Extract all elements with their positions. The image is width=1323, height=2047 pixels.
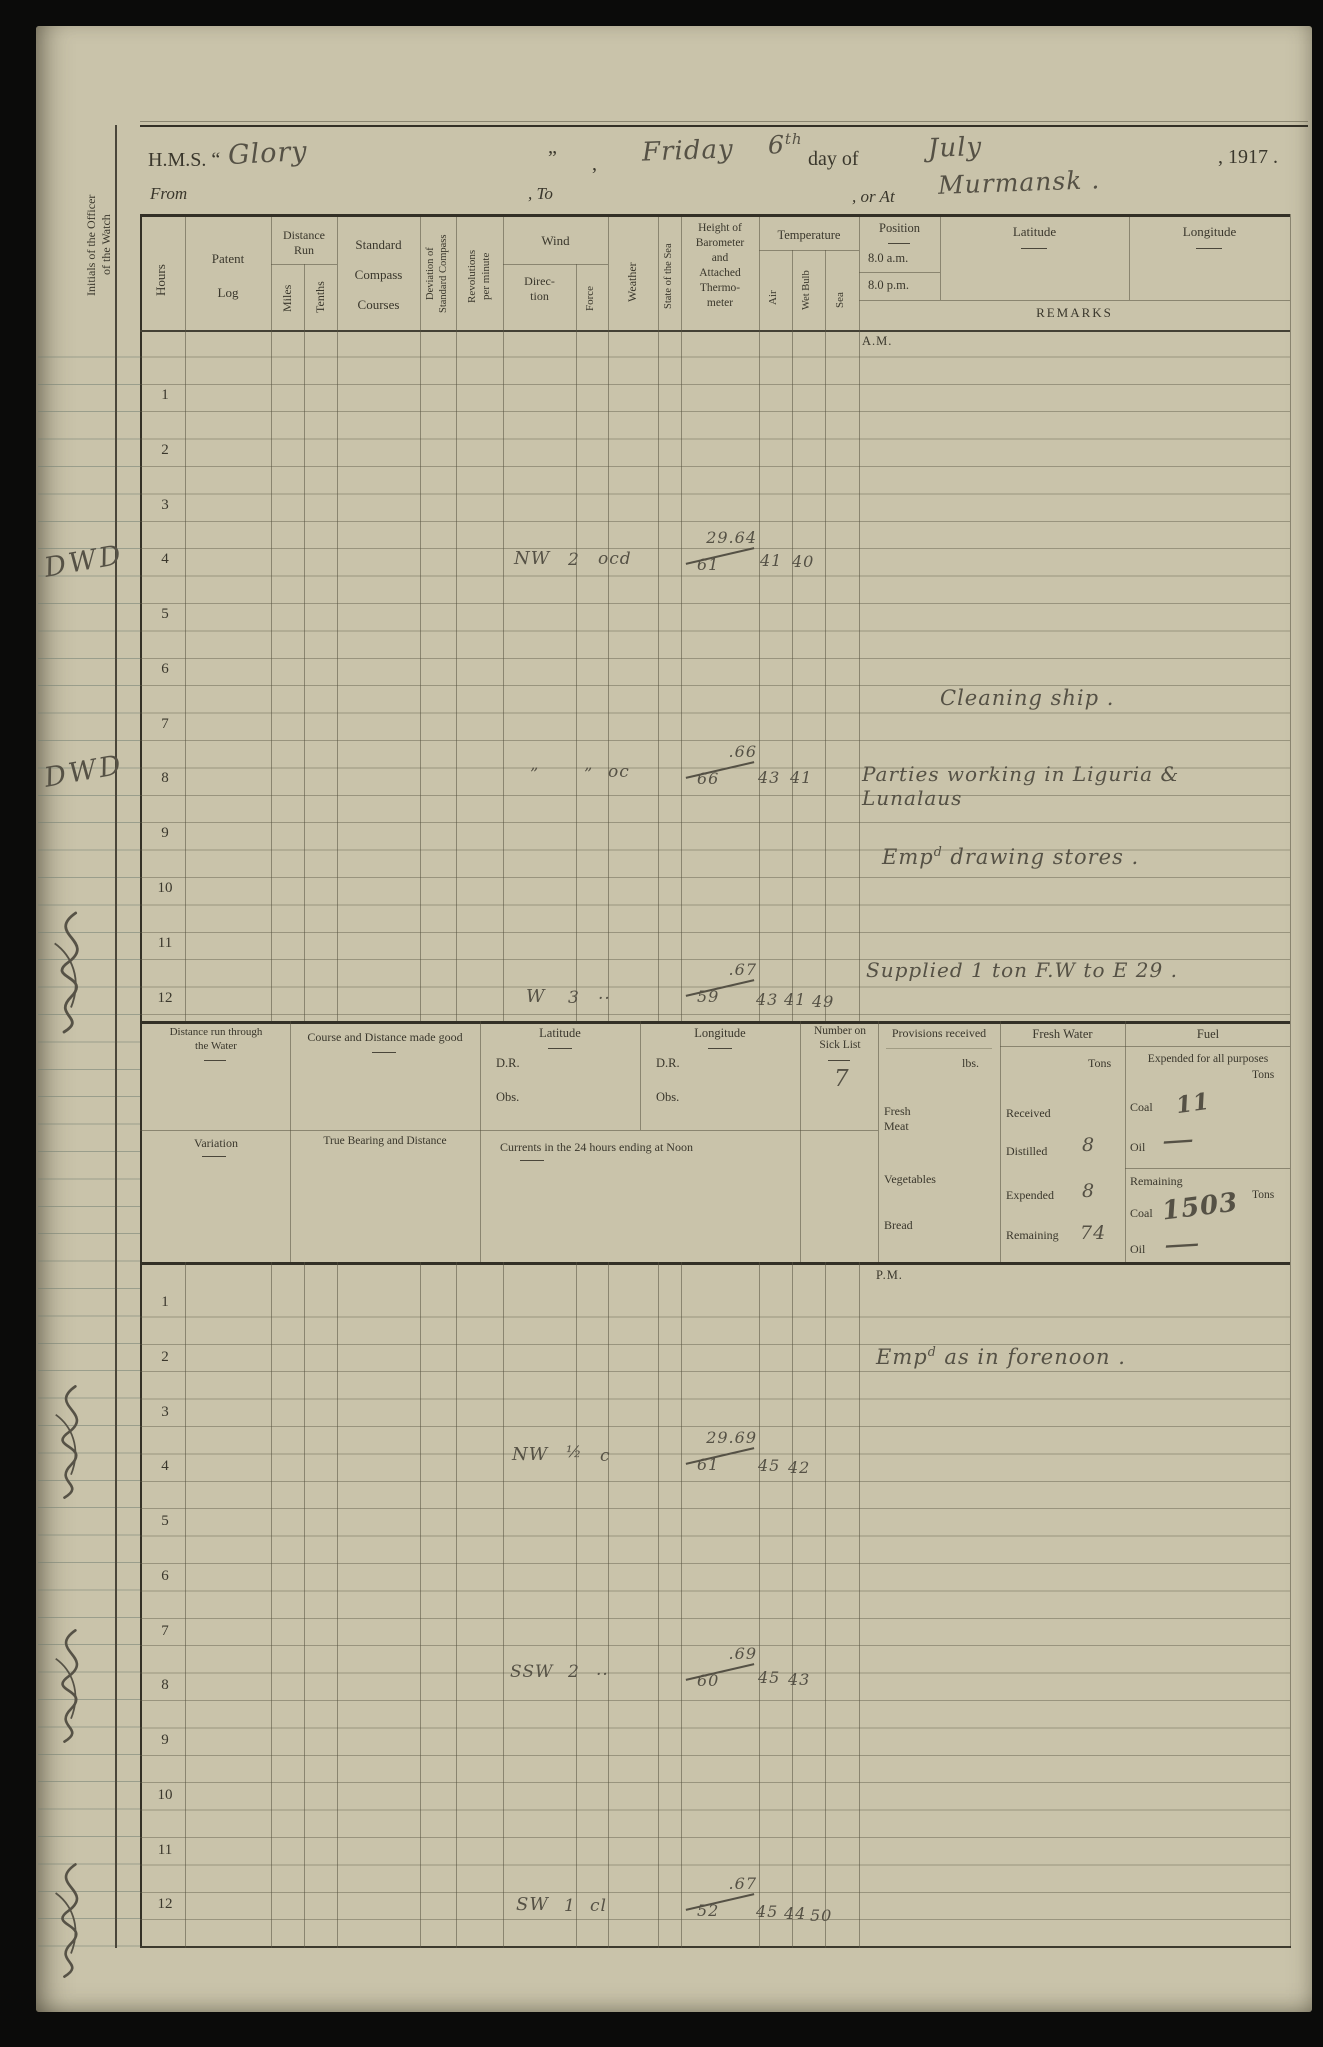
comma: ,: [592, 152, 597, 177]
fuel-expended-header: Expended for all purposes: [1127, 1052, 1289, 1066]
am-r12-sea-temp: 49: [812, 992, 834, 1011]
noon-col-line: [878, 1021, 879, 1262]
standard-compass-header: Standard Compass Courses: [337, 230, 420, 320]
am-r4-wind-force: 2: [568, 550, 580, 570]
fuel-oil-label: Oil: [1130, 1140, 1145, 1155]
fuel-coal-remaining-label: Coal: [1130, 1206, 1153, 1221]
col-line: [681, 1262, 682, 1948]
provisions-label: Provisions received: [880, 1026, 998, 1041]
col-line: [825, 250, 826, 330]
table-right-border: [1290, 214, 1291, 1948]
col-line: [304, 330, 305, 1021]
variation-dash: [202, 1156, 226, 1157]
am-r8-wind-force: ”: [584, 764, 593, 783]
col-line: [792, 250, 793, 330]
sick-list-label: Number on Sick List: [802, 1024, 878, 1053]
noon-col-line: [800, 1021, 801, 1262]
col-line: [576, 264, 577, 330]
fresh-meat-label: Fresh Meat: [884, 1104, 911, 1134]
officer-initials-label: Initials of the Officer of the Watch: [84, 160, 114, 330]
remarks-top-line: [859, 300, 1290, 301]
col-line: [503, 1262, 504, 1948]
position-header: Position: [859, 221, 940, 237]
am-r4-air-temp: 41: [760, 551, 782, 570]
am-label: A.M.: [862, 334, 892, 350]
am-r8-remark: Parties working in Liguria & Lunalaus: [862, 762, 1262, 810]
position-dash: [888, 243, 910, 244]
remarks-header: REMARKS: [859, 305, 1290, 321]
fresh-water-label: Fresh Water: [1002, 1027, 1123, 1043]
fw-distilled-label: Distilled: [1006, 1144, 1047, 1159]
position-8am: 8.0 a.m.: [868, 251, 908, 267]
bread-label: Bread: [884, 1218, 913, 1233]
fuel-remaining-tons-label: Tons: [1252, 1188, 1274, 1202]
sick-list-value: 7: [834, 1066, 850, 1092]
course-made-good-label: Course and Distance made good: [292, 1030, 478, 1045]
barometer-slash: [686, 1447, 755, 1465]
col-line: [185, 1262, 186, 1948]
pm-hour-1: 1: [148, 1293, 182, 1312]
fuel-oil-expended-dash: —: [1160, 1127, 1197, 1153]
vegetables-label: Vegetables: [884, 1172, 936, 1187]
col-line: [825, 330, 826, 1021]
am-r12-air-temp: 43: [756, 990, 778, 1009]
am-hour-12: 12: [148, 989, 182, 1008]
am-hour-10: 10: [148, 879, 182, 898]
pm-r8-barometer-bottom: 60: [697, 1671, 719, 1690]
am-r8-weather: oc: [608, 762, 630, 782]
col-line: [859, 330, 860, 1021]
latitude-header: Latitude: [940, 224, 1129, 240]
distance-water-dash: [204, 1060, 226, 1061]
pm-r4-weather: c: [600, 1446, 611, 1466]
pm-r8-wind-force: 2: [568, 1662, 580, 1682]
pm-r2-remark-sup: d: [928, 1344, 937, 1359]
col-line: [658, 217, 659, 330]
am-r4-wind-direction: NW: [514, 548, 550, 569]
fuel-remaining-header: Remaining: [1130, 1174, 1183, 1189]
table-top-border: [140, 214, 1290, 217]
distance-run-header: Distance Run: [271, 228, 337, 258]
col-line: [337, 1262, 338, 1948]
pm-hour-7: 7: [148, 1622, 182, 1641]
temperature-header: Temperature: [759, 228, 859, 244]
pm-r12-wet-temp: 44: [784, 1904, 806, 1923]
am-r12-weather: ..: [598, 984, 611, 1004]
pm-hour-3: 3: [148, 1403, 182, 1422]
revolutions-header: Revolutions per minute: [466, 226, 494, 326]
pm-label: P.M.: [876, 1268, 903, 1284]
pm-hour-9: 9: [148, 1731, 182, 1750]
true-bearing-label: True Bearing and Distance: [292, 1134, 478, 1148]
fuel-oil-remaining-label: Oil: [1130, 1242, 1145, 1257]
pm-r12-sea-temp: 50: [810, 1906, 832, 1925]
pm-r2-remark-post: as in forenoon .: [937, 1345, 1126, 1369]
am-hour-4: 4: [148, 550, 182, 569]
noon-col-line: [480, 1021, 481, 1262]
officer-signature-flourish: [38, 1382, 104, 1507]
currents-dash: [520, 1160, 544, 1161]
day-ordinal: th: [785, 130, 803, 148]
place-name: Murmansk .: [938, 165, 1101, 200]
month: July: [927, 132, 982, 164]
noon-col-line: [1125, 1021, 1126, 1262]
lbs-label: lbs.: [962, 1056, 979, 1071]
barometer-slash: [686, 547, 755, 565]
col-line: [759, 1262, 760, 1948]
col-line: [759, 330, 760, 1021]
variation-label: Variation: [142, 1136, 290, 1151]
am-r12-wet-temp: 41: [784, 990, 806, 1009]
distance-water-label: Distance run through the Water: [142, 1026, 290, 1054]
pm-r8-wind-direction: SSW: [510, 1662, 553, 1682]
col-line: [185, 330, 186, 1021]
fw-remaining-value: 74: [1080, 1222, 1106, 1244]
or-at-label: , or At: [852, 186, 895, 207]
pm-r8-wet-temp: 43: [788, 1670, 810, 1689]
am-hour-2: 2: [148, 441, 182, 460]
longitude-dash: [1196, 248, 1222, 249]
noon-mid-line: [140, 1130, 878, 1131]
fresh-water-underline: [1000, 1046, 1125, 1047]
col-line: [271, 330, 272, 1021]
am-r8-barometer: .66 66: [683, 742, 759, 796]
fw-tons-label: Tons: [1088, 1056, 1111, 1071]
latitude-dash: [1021, 248, 1047, 249]
am-r12-wind-force: 3: [568, 988, 580, 1008]
noon-col-line: [1000, 1021, 1001, 1262]
officer-signature-flourish: [38, 1858, 104, 1988]
fw-received-label: Received: [1006, 1106, 1051, 1121]
am-grid-lines: [140, 330, 1290, 1021]
am-r9-remark: Empd drawing stores .: [882, 844, 1139, 869]
pm-hour-11: 11: [148, 1841, 182, 1860]
am-r12-barometer-bottom: 59: [697, 987, 719, 1006]
close-quote: ”: [548, 146, 557, 171]
pm-r12-air-temp: 45: [756, 1902, 778, 1921]
noon-col-line: [640, 1021, 641, 1130]
hms-label: H.M.S. “: [148, 148, 220, 173]
fuel-coal-label: Coal: [1130, 1100, 1153, 1115]
col-line: [337, 330, 338, 1021]
am-r12-barometer-top: .67: [729, 960, 757, 979]
pm-r4-wet-temp: 42: [788, 1458, 810, 1477]
pm-r4-wind-direction: NW: [512, 1444, 548, 1465]
day-of-label: day of: [808, 147, 859, 172]
fuel-coal-expended-value: 11: [1174, 1088, 1211, 1119]
am-hour-3: 3: [148, 496, 182, 515]
am-r8-wet-temp: 41: [790, 768, 812, 787]
wind-header: Wind: [503, 233, 608, 249]
col-line: [420, 217, 421, 330]
fw-remaining-label: Remaining: [1006, 1228, 1059, 1243]
pm-r2-remark-pre: Emp: [876, 1345, 928, 1369]
pm-r4-air-temp: 45: [758, 1456, 780, 1475]
barometer-slash: [686, 1663, 755, 1681]
barometer-slash: [686, 979, 755, 997]
fuel-remaining-split: [1125, 1168, 1290, 1169]
position-8pm: 8.0 p.m.: [868, 278, 909, 294]
force-header: Force: [584, 272, 598, 324]
noon-bottom-border: [140, 1262, 1290, 1265]
barometer-header: Height of Barometer and Attached Thermo-…: [681, 221, 759, 311]
fuel-tons-label: Tons: [1252, 1068, 1274, 1082]
pm-hour-10: 10: [148, 1786, 182, 1805]
am-hour-9: 9: [148, 824, 182, 843]
course-made-good-dash: [372, 1052, 396, 1053]
direction-header: Direc- tion: [503, 274, 576, 304]
distance-run-split: [271, 264, 337, 265]
officer-signature-flourish: [36, 905, 106, 1045]
noon-col-line: [290, 1021, 291, 1262]
col-line: [456, 1262, 457, 1948]
wet-bulb-header: Wet Bulb: [800, 258, 813, 322]
deviation-header: Deviation of Standard Compass: [424, 222, 450, 326]
officer-signature-flourish: [38, 1626, 104, 1751]
am-hour-8: 8: [148, 769, 182, 788]
pm-r12-wind-direction: SW: [516, 1894, 549, 1915]
state-of-sea-header: State of the Sea: [662, 226, 675, 326]
to-label: , To: [528, 183, 553, 204]
am-r9-remark-pre: Emp: [882, 845, 934, 869]
miles-header: Miles: [280, 270, 295, 326]
noon-latitude-dash: [548, 1048, 572, 1049]
col-line: [658, 330, 659, 1021]
pm-r2-remark: Empd as in forenoon .: [876, 1344, 1126, 1369]
am-r4-weather: ocd: [598, 549, 632, 569]
pm-hour-12: 12: [148, 1895, 182, 1914]
sick-list-dash: [828, 1060, 850, 1061]
pm-hour-4: 4: [148, 1457, 182, 1476]
top-rule: [140, 125, 1308, 127]
air-header: Air: [767, 278, 781, 318]
patent-log-header: Patent Log: [185, 242, 271, 310]
am-r8-wind-direction: ”: [530, 764, 539, 783]
sea-header: Sea: [834, 280, 848, 320]
longitude-obs-label: Obs.: [656, 1090, 679, 1106]
pm-r8-barometer: .69 60: [683, 1644, 759, 1698]
provisions-underline: [886, 1048, 992, 1049]
am-r12-barometer: .67 59: [683, 960, 759, 1014]
pm-r8-barometer-top: .69: [729, 1644, 757, 1663]
noon-longitude-label: Longitude: [642, 1026, 798, 1042]
am-r9-remark-sup: d: [934, 844, 943, 859]
am-r8-barometer-top: .66: [729, 742, 757, 761]
from-label: From: [150, 183, 187, 204]
weekday: Friday: [642, 134, 735, 167]
col-line: [576, 330, 577, 1021]
logbook-scan: H.M.S. “ Glory ” , Friday 6th day of Jul…: [0, 0, 1323, 2047]
pm-r4-barometer: 29.69 61: [683, 1428, 759, 1482]
currents-label: Currents in the 24 hours ending at Noon: [500, 1140, 693, 1155]
weather-header: Weather: [625, 242, 640, 322]
day-number: 6th: [768, 130, 803, 159]
am-r12-wind-direction: W: [526, 986, 546, 1007]
fuel-oil-remaining-dash: —: [1161, 1231, 1203, 1257]
fuel-label: Fuel: [1127, 1027, 1289, 1043]
col-line: [608, 330, 609, 1021]
longitude-header: Longitude: [1129, 224, 1290, 240]
col-line: [792, 330, 793, 1021]
pm-r4-wind-force: ½: [566, 1442, 583, 1461]
am-r4-barometer-bottom: 61: [697, 555, 719, 574]
pm-r12-barometer: .67 52: [683, 1874, 759, 1928]
am-r4-barometer-top: 29.64: [706, 528, 757, 547]
col-line: [792, 1262, 793, 1948]
tenths-header: Tenths: [313, 266, 328, 328]
pm-r12-wind-force: 1: [564, 1896, 576, 1916]
pm-r8-weather: ..: [596, 1660, 609, 1680]
pm-r12-barometer-top: .67: [729, 1874, 757, 1893]
am-r7-remark: Cleaning ship .: [940, 686, 1114, 710]
fuel-underline: [1125, 1046, 1290, 1047]
am-hour-11: 11: [148, 934, 182, 953]
top-rule-thin: [140, 121, 1308, 122]
am-r8-barometer-bottom: 66: [697, 769, 719, 788]
col-line: [681, 330, 682, 1021]
pm-hour-6: 6: [148, 1567, 182, 1586]
latitude-dr-label: D.R.: [496, 1056, 520, 1072]
fw-distilled-value: 8: [1082, 1134, 1095, 1156]
position-am-pm-split: [859, 272, 940, 273]
pm-r4-barometer-bottom: 61: [697, 1455, 719, 1474]
col-line: [608, 1262, 609, 1948]
col-line: [304, 264, 305, 330]
col-line: [658, 1262, 659, 1948]
am-r8-air-temp: 43: [758, 768, 780, 787]
pm-r4-barometer-top: 29.69: [706, 1428, 757, 1447]
noon-longitude-dash: [708, 1048, 732, 1049]
am-hour-7: 7: [148, 715, 182, 734]
pm-hour-2: 2: [148, 1348, 182, 1367]
am-r4-barometer: 29.64 61: [683, 528, 759, 582]
am-hour-1: 1: [148, 386, 182, 405]
noon-latitude-label: Latitude: [482, 1026, 638, 1042]
col-line: [503, 330, 504, 1021]
col-line: [304, 1262, 305, 1948]
barometer-slash: [686, 761, 755, 779]
col-line: [825, 1262, 826, 1948]
pm-r12-barometer-bottom: 52: [697, 1901, 719, 1920]
wind-split: [503, 264, 608, 265]
col-line: [420, 330, 421, 1021]
am-hour-6: 6: [148, 660, 182, 679]
col-line: [576, 1262, 577, 1948]
pm-grid-lines: [140, 1290, 1290, 1948]
pm-hour-8: 8: [148, 1676, 182, 1695]
col-line: [859, 1262, 860, 1948]
margin-rule: [115, 125, 117, 1948]
pm-r12-weather: cl: [590, 1896, 607, 1916]
barometer-slash: [686, 1893, 755, 1911]
day-digit: 6: [768, 130, 785, 159]
am-hour-5: 5: [148, 605, 182, 624]
longitude-dr-label: D.R.: [656, 1056, 680, 1072]
am-r4-wet-temp: 40: [792, 552, 814, 571]
year: , 1917 .: [1218, 145, 1278, 170]
pm-hour-5: 5: [148, 1512, 182, 1531]
temperature-split: [759, 250, 859, 251]
noon-top-border: [140, 1021, 1290, 1024]
col-line: [420, 1262, 421, 1948]
fw-expended-value: 8: [1082, 1180, 1095, 1202]
col-line: [456, 217, 457, 330]
pm-r8-air-temp: 45: [758, 1668, 780, 1687]
am-r9-remark-post: drawing stores .: [943, 845, 1139, 869]
hours-header: Hours: [153, 235, 169, 325]
ship-name: Glory: [227, 136, 308, 171]
am-r12-remark: Supplied 1 ton F.W to E 29 .: [866, 958, 1178, 982]
latitude-obs-label: Obs.: [496, 1090, 519, 1106]
fw-expended-label: Expended: [1006, 1188, 1054, 1203]
col-line: [608, 217, 609, 330]
col-line: [456, 330, 457, 1021]
col-line: [271, 1262, 272, 1948]
